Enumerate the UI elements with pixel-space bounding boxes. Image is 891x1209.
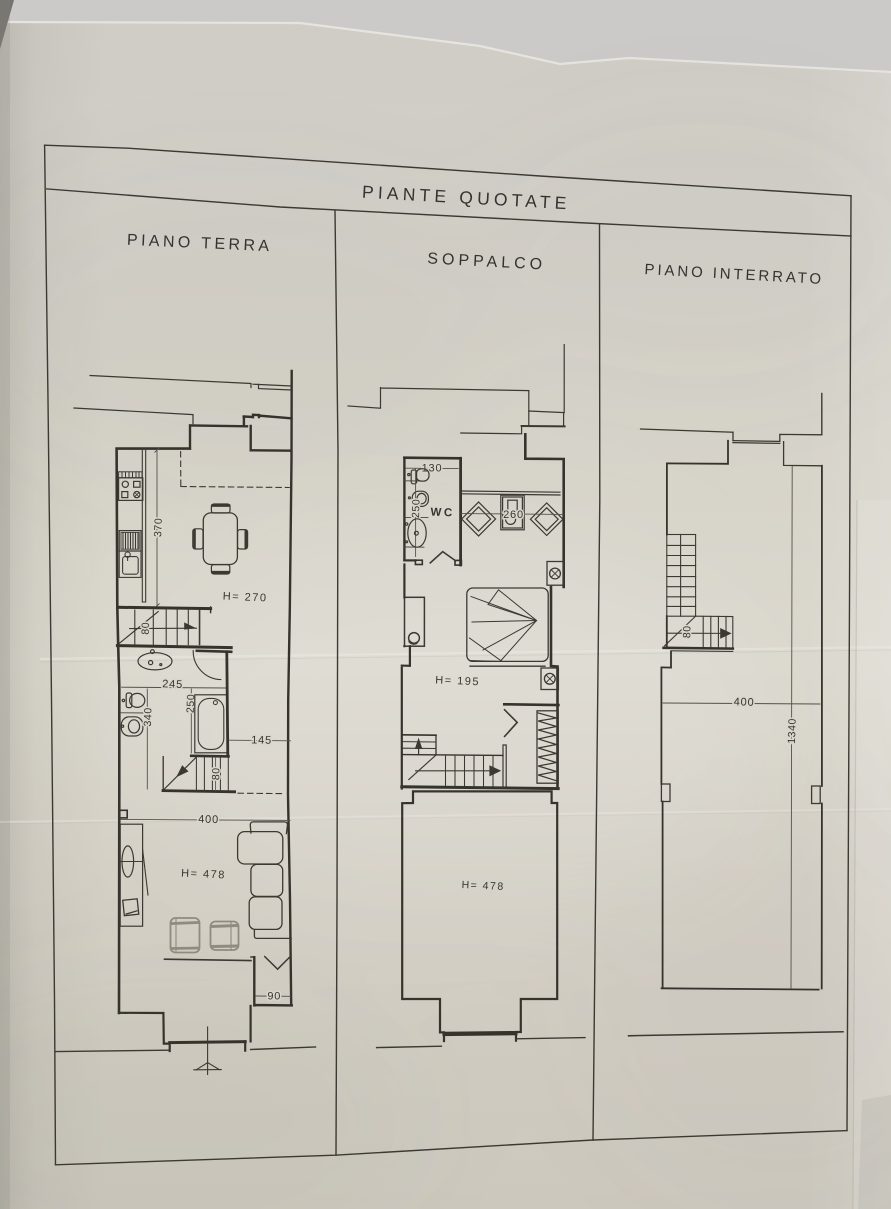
svg-text:80: 80 [681, 625, 693, 638]
svg-text:90: 90 [267, 990, 281, 1002]
svg-text:340: 340 [142, 707, 155, 727]
svg-text:145: 145 [251, 734, 272, 747]
svg-text:SOPPALCO: SOPPALCO [427, 250, 547, 273]
svg-text:250: 250 [410, 499, 423, 519]
svg-text:PIANO TERRA: PIANO TERRA [127, 232, 273, 256]
svg-text:250: 250 [185, 694, 198, 714]
svg-text:400: 400 [198, 814, 219, 827]
svg-text:PIANTE QUOTATE: PIANTE QUOTATE [362, 182, 572, 214]
svg-text:1340: 1340 [786, 718, 799, 744]
svg-text:PIANO INTERRATO: PIANO INTERRATO [644, 261, 824, 288]
svg-text:H= 270: H= 270 [222, 591, 267, 605]
svg-text:H= 195: H= 195 [435, 674, 480, 688]
svg-text:260: 260 [503, 509, 524, 521]
svg-text:H= 478: H= 478 [181, 868, 226, 882]
svg-text:370: 370 [152, 518, 165, 538]
svg-text:H= 478: H= 478 [461, 879, 505, 893]
svg-text:80: 80 [210, 767, 222, 780]
svg-text:WC: WC [430, 506, 455, 519]
svg-text:400: 400 [734, 696, 755, 709]
svg-text:245: 245 [162, 678, 183, 691]
svg-text:80: 80 [140, 622, 152, 635]
